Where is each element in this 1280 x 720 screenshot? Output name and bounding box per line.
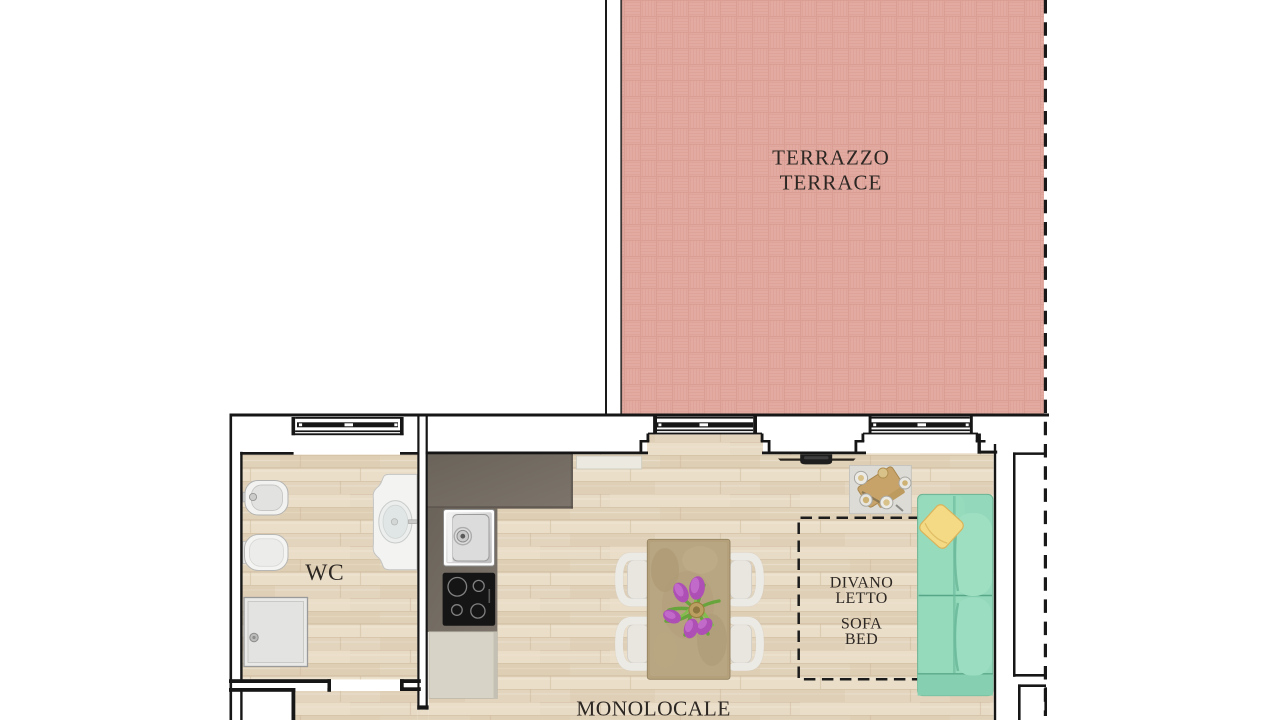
svg-text:TERRACE: TERRACE <box>780 171 883 195</box>
svg-text:SOFA: SOFA <box>841 616 882 633</box>
svg-text:WC: WC <box>305 560 344 586</box>
svg-text:DIVANO: DIVANO <box>830 575 893 592</box>
svg-text:LETTO: LETTO <box>835 590 887 607</box>
svg-text:TERRAZZO: TERRAZZO <box>772 146 890 170</box>
svg-text:BED: BED <box>845 631 878 648</box>
svg-text:MONOLOCALE: MONOLOCALE <box>576 697 731 720</box>
